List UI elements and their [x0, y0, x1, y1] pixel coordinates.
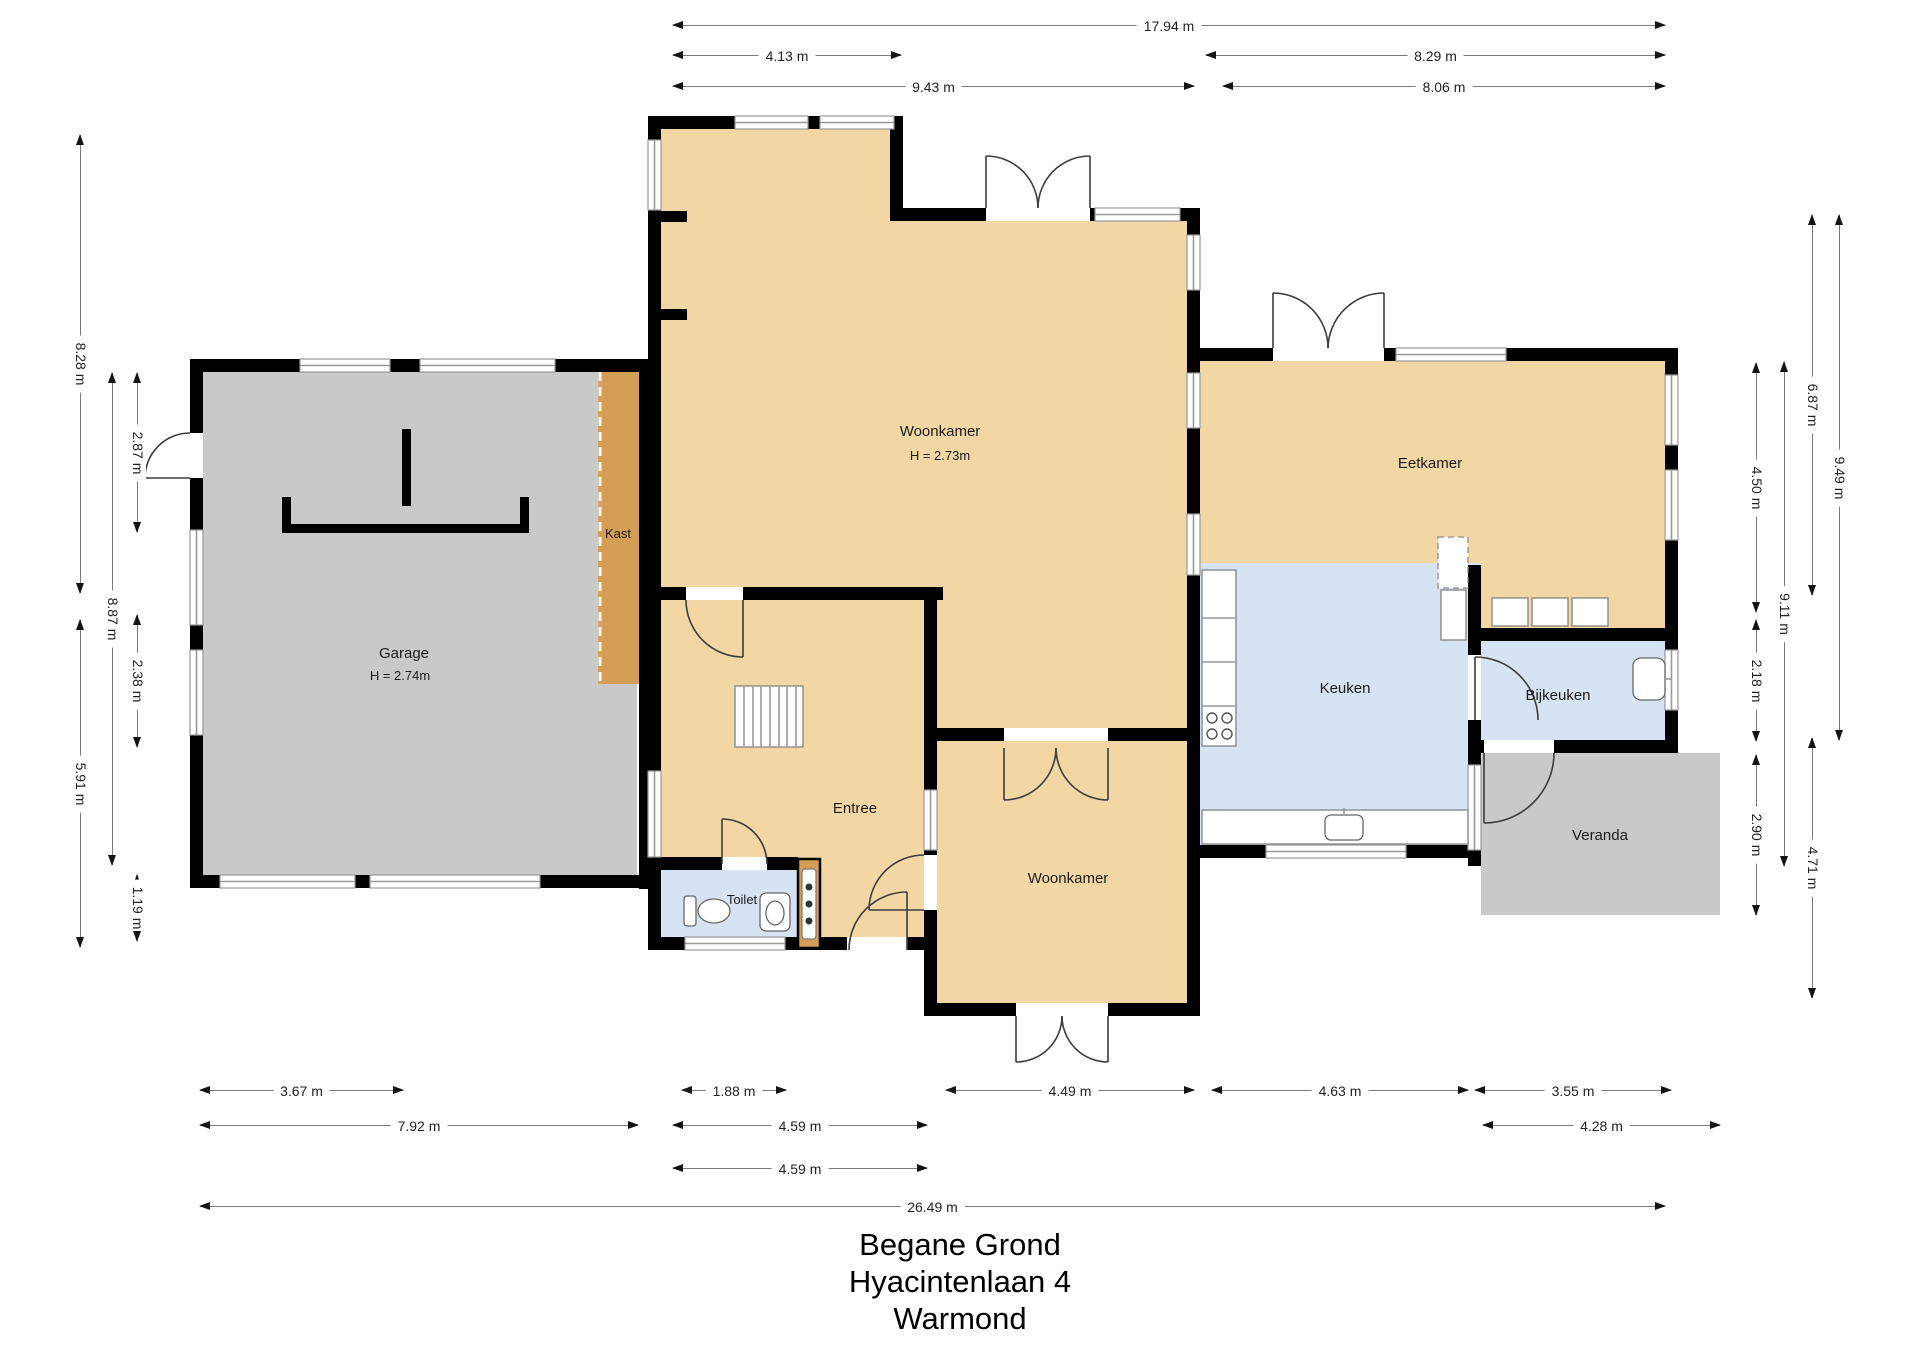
- room-kast-fill: [598, 366, 639, 684]
- dim-label: 8.29 m: [1407, 48, 1464, 64]
- dim-label: 3.55 m: [1545, 1083, 1602, 1099]
- label-bijkeuken: Bijkeuken: [1525, 687, 1590, 704]
- room-fills: [190, 129, 1720, 1003]
- dim-left-inner-b: 2.38 m: [137, 615, 138, 747]
- dim-label: 26.49 m: [900, 1199, 965, 1215]
- label-veranda: Veranda: [1572, 827, 1629, 844]
- dim-bottom-b1: 7.92 m: [200, 1125, 638, 1126]
- eetkamer-double-door-icon: [1273, 293, 1384, 348]
- dim-label: 2.87 m: [130, 424, 146, 481]
- dim-label: 4.71 m: [1805, 840, 1821, 897]
- garage-door-arc-icon: [145, 433, 190, 478]
- meter-cabinet-icon: [798, 859, 820, 948]
- dim-label: 7.92 m: [391, 1118, 448, 1134]
- dim-right-outermost: 9.49 m: [1839, 215, 1840, 740]
- dim-left-mid: 8.87 m: [112, 373, 113, 865]
- dim-label: 4.59 m: [772, 1118, 829, 1134]
- label-garage: Garage: [379, 645, 429, 662]
- dim-label: 9.43 m: [905, 79, 962, 95]
- kitchen-appliance-column-icon: [1202, 570, 1236, 746]
- title-floor: Begane Grond: [0, 1226, 1920, 1263]
- dim-label: 6.87 m: [1805, 377, 1821, 434]
- dim-top-total: 17.94 m: [673, 25, 1665, 26]
- dim-label: 2.90 m: [1749, 807, 1765, 864]
- dim-label: 2.38 m: [130, 653, 146, 710]
- dim-label: 5.91 m: [73, 755, 89, 812]
- dim-left-inner-c: 1.19 m: [137, 875, 138, 941]
- dim-label: 3.67 m: [273, 1083, 330, 1099]
- dim-label: 4.63 m: [1312, 1083, 1369, 1099]
- room-garage-fill: [190, 359, 637, 888]
- dim-label: 2.18 m: [1749, 652, 1765, 709]
- dim-right-outer-b: 4.71 m: [1812, 738, 1813, 998]
- dim-label: 9.11 m: [1777, 586, 1793, 642]
- dim-label: 4.49 m: [1042, 1083, 1099, 1099]
- dim-left-outer-a: 8.28 m: [80, 135, 81, 593]
- woonkamer-double-door-icon: [986, 156, 1090, 208]
- toilet-icon: [684, 896, 730, 926]
- woonkamer2-exterior-double-door-icon: [1016, 1016, 1108, 1062]
- dim-label: 1.19 m: [130, 880, 146, 937]
- label-garage-height: H = 2.74m: [370, 668, 430, 683]
- dim-bottom-a4: 4.63 m: [1212, 1090, 1468, 1091]
- plan-title: Begane Grond Hyacintenlaan 4 Warmond: [0, 1226, 1920, 1337]
- label-toilet: Toilet: [727, 892, 758, 907]
- dim-right-inner-a: 4.50 m: [1756, 363, 1757, 612]
- dim-label: 4.28 m: [1573, 1118, 1630, 1134]
- dim-label: 1.88 m: [706, 1083, 763, 1099]
- bijkeuken-cupboards-icon: [1492, 598, 1608, 626]
- dim-right-outer-a: 6.87 m: [1812, 215, 1813, 595]
- dim-top-right-b: 8.06 m: [1223, 86, 1665, 87]
- label-keuken: Keuken: [1320, 680, 1371, 697]
- dim-right-mid: 9.11 m: [1784, 362, 1785, 866]
- title-address: Hyacintenlaan 4: [0, 1263, 1920, 1300]
- kitchen-counter-icon: [1202, 808, 1468, 844]
- dim-label: 17.94 m: [1137, 18, 1202, 34]
- dim-bottom-a2: 1.88 m: [682, 1090, 786, 1091]
- label-woonkamer1-height: H = 2.73m: [910, 448, 970, 463]
- dim-bottom-b3: 4.28 m: [1483, 1125, 1720, 1126]
- label-entree: Entree: [833, 800, 877, 817]
- dim-bottom-b2: 4.59 m: [673, 1125, 927, 1126]
- stairs-icon: [735, 686, 803, 747]
- dim-bottom-a1: 3.67 m: [200, 1090, 403, 1091]
- dim-bottom-total: 26.49 m: [200, 1206, 1665, 1207]
- dim-right-inner-c: 2.90 m: [1756, 755, 1757, 915]
- dim-left-inner-a: 2.87 m: [137, 373, 138, 532]
- dim-right-inner-b: 2.18 m: [1756, 620, 1757, 741]
- dim-label: 4.59 m: [772, 1161, 829, 1177]
- dim-left-outer-b: 5.91 m: [80, 620, 81, 947]
- dim-label: 9.49 m: [1832, 449, 1848, 506]
- label-woonkamer2: Woonkamer: [1028, 870, 1109, 887]
- dim-bottom-c1: 4.59 m: [673, 1168, 927, 1169]
- dim-bottom-a3: 4.49 m: [946, 1090, 1194, 1091]
- dim-top-left-a: 4.13 m: [673, 55, 901, 56]
- label-eetkamer: Eetkamer: [1398, 455, 1462, 472]
- title-city: Warmond: [0, 1300, 1920, 1337]
- dim-top-right-a: 8.29 m: [1206, 55, 1665, 56]
- dim-label: 8.87 m: [105, 591, 121, 648]
- toilet-sink-icon: [760, 893, 790, 931]
- dim-bottom-a5: 3.55 m: [1475, 1090, 1671, 1091]
- dim-label: 8.06 m: [1416, 79, 1473, 95]
- dim-label: 4.13 m: [759, 48, 816, 64]
- dim-top-left-b: 9.43 m: [673, 86, 1194, 87]
- label-kast: Kast: [605, 526, 631, 541]
- dim-label: 4.50 m: [1749, 459, 1765, 516]
- dim-label: 8.28 m: [73, 336, 89, 393]
- floor-plan-svg: Woonkamer H = 2.73m Garage H = 2.74m Kas…: [0, 0, 1920, 1358]
- label-woonkamer1: Woonkamer: [900, 423, 981, 440]
